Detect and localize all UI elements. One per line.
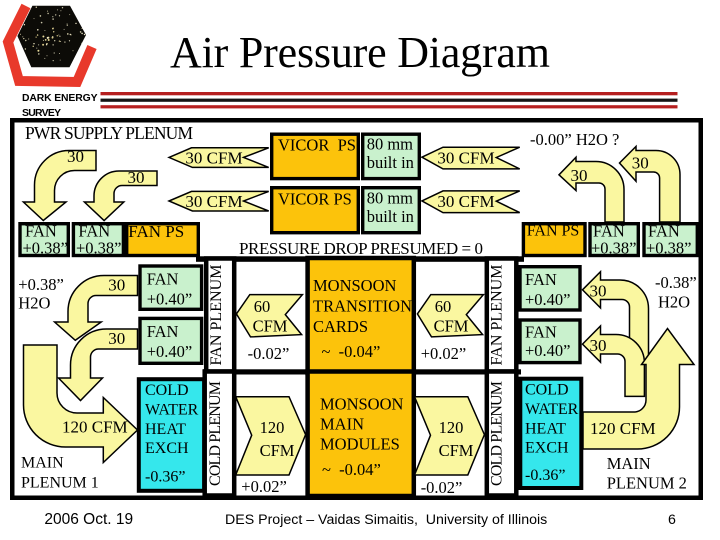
- svg-text:FAN PS: FAN PS: [128, 222, 184, 241]
- svg-text:~ -0.04”: ~ -0.04”: [322, 342, 381, 361]
- svg-text:30: 30: [128, 168, 145, 187]
- svg-text:30: 30: [67, 147, 84, 166]
- svg-text:+0.38”: +0.38”: [646, 239, 692, 258]
- svg-text:WATER: WATER: [145, 402, 199, 419]
- svg-text:CFM: CFM: [439, 441, 474, 460]
- svg-text:PWR SUPPLY PLENUM: PWR SUPPLY PLENUM: [25, 123, 193, 143]
- svg-text:VICOR PS: VICOR PS: [278, 136, 356, 155]
- svg-text:6: 6: [668, 512, 676, 528]
- svg-text:120: 120: [439, 418, 464, 437]
- svg-text:PRESSURE DROP PRESUMED = 0: PRESSURE DROP PRESUMED = 0: [239, 239, 483, 258]
- svg-text:~ -0.04”: ~ -0.04”: [322, 460, 381, 479]
- svg-text:30 CFM: 30 CFM: [437, 149, 494, 168]
- svg-text:+0.40”: +0.40”: [525, 290, 571, 309]
- svg-text:FAN PS: FAN PS: [527, 223, 580, 240]
- svg-text:30 CFM: 30 CFM: [185, 149, 242, 168]
- svg-text:MAIN: MAIN: [607, 454, 651, 473]
- svg-text:+0.40”: +0.40”: [147, 342, 193, 361]
- svg-text:MODULES: MODULES: [320, 435, 400, 454]
- svg-text:PLENUM 2: PLENUM 2: [607, 474, 687, 493]
- svg-text:30: 30: [590, 336, 607, 355]
- svg-text:FAN: FAN: [525, 323, 557, 342]
- svg-text:120: 120: [260, 418, 285, 437]
- svg-text:30 CFM: 30 CFM: [437, 192, 494, 211]
- svg-text:COLD PLENUM: COLD PLENUM: [207, 381, 224, 486]
- svg-text:H2O: H2O: [18, 293, 50, 312]
- svg-text:COLD: COLD: [145, 382, 189, 399]
- svg-text:FAN PLENUM: FAN PLENUM: [208, 265, 225, 366]
- svg-text:+0.38”: +0.38”: [23, 239, 69, 258]
- svg-text:DARK ENERGY: DARK ENERGY: [22, 93, 98, 104]
- svg-text:HEAT: HEAT: [145, 421, 186, 438]
- svg-text:30 CFM: 30 CFM: [185, 192, 242, 211]
- svg-text:EXCH: EXCH: [525, 439, 569, 456]
- svg-text:-0.02”: -0.02”: [248, 344, 290, 363]
- svg-text:120 CFM: 120 CFM: [590, 419, 656, 438]
- svg-text:VICOR PS: VICOR PS: [278, 190, 352, 209]
- svg-text:CFM: CFM: [434, 317, 469, 336]
- svg-text:+0.38”: +0.38”: [591, 239, 637, 258]
- svg-text:EXCH: EXCH: [145, 440, 189, 457]
- svg-text:80 mm: 80 mm: [367, 134, 413, 153]
- svg-text:TRANSITION: TRANSITION: [313, 297, 412, 316]
- svg-text:MONSOON: MONSOON: [320, 395, 404, 414]
- svg-text:30: 30: [108, 329, 125, 348]
- svg-text:+0.02”: +0.02”: [421, 344, 467, 363]
- svg-text:FAN: FAN: [525, 270, 557, 289]
- svg-text:MAIN: MAIN: [320, 415, 364, 434]
- svg-text:FAN: FAN: [147, 270, 179, 289]
- svg-text:built in: built in: [367, 207, 414, 226]
- svg-text:FAN: FAN: [147, 322, 179, 341]
- svg-text:SURVEY: SURVEY: [22, 108, 61, 119]
- svg-text:+0.40”: +0.40”: [525, 341, 571, 360]
- svg-text:WATER: WATER: [525, 401, 579, 418]
- svg-text:DES Project – Vaidas Simaitis,: DES Project – Vaidas Simaitis, Universit…: [225, 512, 547, 528]
- svg-text:+0.02”: +0.02”: [241, 477, 287, 496]
- svg-text:CFM: CFM: [253, 317, 288, 336]
- svg-text:-0.36”: -0.36”: [525, 467, 565, 484]
- svg-text:30: 30: [108, 276, 125, 295]
- svg-text:+0.40”: +0.40”: [147, 290, 193, 309]
- svg-text:PLENUM 1: PLENUM 1: [21, 475, 99, 492]
- svg-text:HEAT: HEAT: [525, 420, 566, 437]
- svg-text:FAN PLENUM: FAN PLENUM: [489, 265, 506, 366]
- svg-text:H2O: H2O: [658, 293, 690, 312]
- svg-text:30: 30: [590, 282, 607, 301]
- svg-text:30: 30: [632, 154, 649, 173]
- svg-text:+0.38”: +0.38”: [76, 239, 122, 258]
- svg-text:COLD PLENUM: COLD PLENUM: [489, 381, 506, 486]
- svg-text:CARDS: CARDS: [313, 317, 368, 336]
- svg-text:-0.36”: -0.36”: [145, 469, 185, 486]
- svg-text:30: 30: [571, 166, 588, 185]
- svg-text:-0.00” H2O ?: -0.00” H2O ?: [530, 130, 619, 149]
- svg-text:COLD: COLD: [525, 382, 569, 399]
- svg-text:-0.02”: -0.02”: [421, 478, 463, 497]
- svg-text:2006 Oct. 19: 2006 Oct. 19: [44, 511, 133, 528]
- svg-text:60: 60: [435, 297, 452, 316]
- svg-text:120 CFM: 120 CFM: [62, 418, 128, 437]
- svg-text:MONSOON: MONSOON: [313, 276, 397, 295]
- svg-text:80 mm: 80 mm: [367, 188, 413, 207]
- svg-text:MAIN: MAIN: [21, 455, 64, 472]
- svg-text:built in: built in: [367, 153, 414, 172]
- svg-text:Air Pressure Diagram: Air Pressure Diagram: [170, 28, 550, 77]
- svg-text:60: 60: [254, 297, 271, 316]
- svg-text:CFM: CFM: [260, 441, 295, 460]
- svg-text:-0.38”: -0.38”: [655, 273, 697, 292]
- svg-text:+0.38”: +0.38”: [18, 275, 64, 294]
